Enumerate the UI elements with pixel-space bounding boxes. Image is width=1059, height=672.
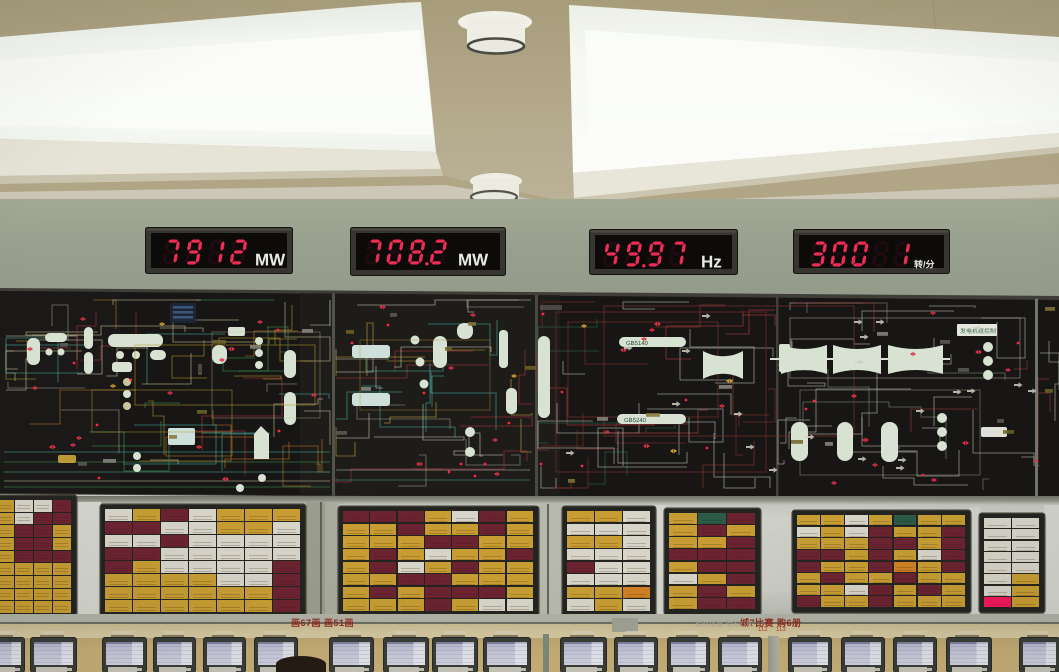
svg-text:GB5240: GB5240 [624,417,647,424]
svg-text:转/分: 转/分 [914,260,935,270]
svg-text:Hz: Hz [701,253,722,272]
svg-text:MW: MW [458,251,489,270]
svg-text:MW: MW [255,251,286,270]
